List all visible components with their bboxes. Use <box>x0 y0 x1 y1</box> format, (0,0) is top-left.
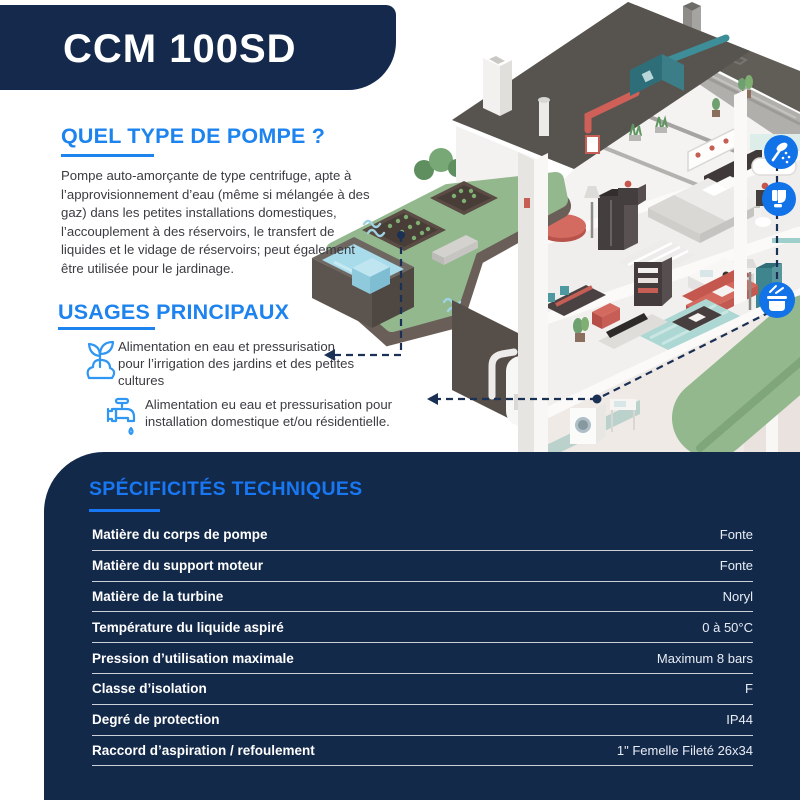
spec-value: 0 à 50°C <box>702 620 753 635</box>
spec-label: Matière de la turbine <box>92 589 223 604</box>
usages-heading: USAGES PRINCIPAUX <box>58 300 289 325</box>
spec-label: Degré de protection <box>92 712 220 727</box>
corner-pillar <box>518 152 548 465</box>
spec-value: Noryl <box>723 589 753 604</box>
table-row: Degré de protection IP44 <box>92 705 753 736</box>
spec-value: 1" Femelle Fileté 26x34 <box>617 743 753 758</box>
spec-value: F <box>745 681 753 696</box>
spec-label: Matière du corps de pompe <box>92 527 268 542</box>
shower-icon <box>764 135 798 169</box>
table-row: Température du liquide aspiré 0 à 50°C <box>92 612 753 643</box>
spec-label: Pression d’utilisation maximale <box>92 651 294 666</box>
spec-value: IP44 <box>726 712 753 727</box>
toilet-icon <box>762 182 796 216</box>
spec-label: Raccord d’aspiration / refoulement <box>92 743 315 758</box>
table-row: Matière du corps de pompe Fonte <box>92 520 753 551</box>
spec-label: Température du liquide aspiré <box>92 620 284 635</box>
spec-value: Fonte <box>720 527 753 542</box>
table-row: Pression d’utilisation maximale Maximum … <box>92 643 753 674</box>
usage-text-domestic: Alimentation eu eau et pressurisation po… <box>145 396 419 430</box>
pump-type-underline <box>61 154 154 157</box>
pump-type-heading: QUEL TYPE DE POMPE ? <box>61 124 325 149</box>
usage-text-irrigation: Alimentation en eau et pressurisation po… <box>118 338 360 390</box>
specs-underline <box>89 509 160 512</box>
table-row: Classe d’isolation F <box>92 674 753 705</box>
specs-panel: SPÉCIFICITÉS TECHNIQUES Matière du corps… <box>44 452 800 800</box>
spec-label: Matière du support moteur <box>92 558 263 573</box>
spec-label: Classe d’isolation <box>92 681 207 696</box>
header-banner: CCM 100SD <box>0 5 396 90</box>
infographic-canvas: CCM 100SD QUEL TYPE DE POMPE ? Pompe aut… <box>0 0 800 800</box>
faucet-icon <box>104 397 140 435</box>
sprout-icon <box>84 338 116 380</box>
table-row: Matière du support moteur Fonte <box>92 551 753 582</box>
table-row: Matière de la turbine Noryl <box>92 582 753 613</box>
cooking-pot-icon <box>759 282 795 318</box>
specs-heading: SPÉCIFICITÉS TECHNIQUES <box>89 478 362 501</box>
pump-type-description: Pompe auto-amorçante de type centrifuge,… <box>61 167 373 279</box>
spec-value: Maximum 8 bars <box>657 651 753 666</box>
specs-table: Matière du corps de pompe Fonte Matière … <box>92 520 753 766</box>
usages-underline <box>58 327 155 330</box>
table-row: Raccord d’aspiration / refoulement 1" Fe… <box>92 736 753 767</box>
spec-value: Fonte <box>720 558 753 573</box>
product-title: CCM 100SD <box>63 27 297 72</box>
